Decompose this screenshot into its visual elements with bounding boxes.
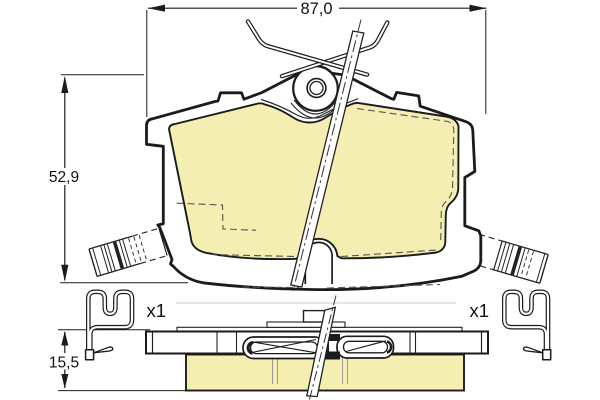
svg-text:x1: x1 — [147, 300, 167, 321]
svg-text:x1: x1 — [470, 300, 490, 321]
svg-text:52,9: 52,9 — [49, 169, 79, 186]
svg-text:87,0: 87,0 — [300, 0, 332, 18]
svg-text:15,5: 15,5 — [49, 355, 79, 372]
